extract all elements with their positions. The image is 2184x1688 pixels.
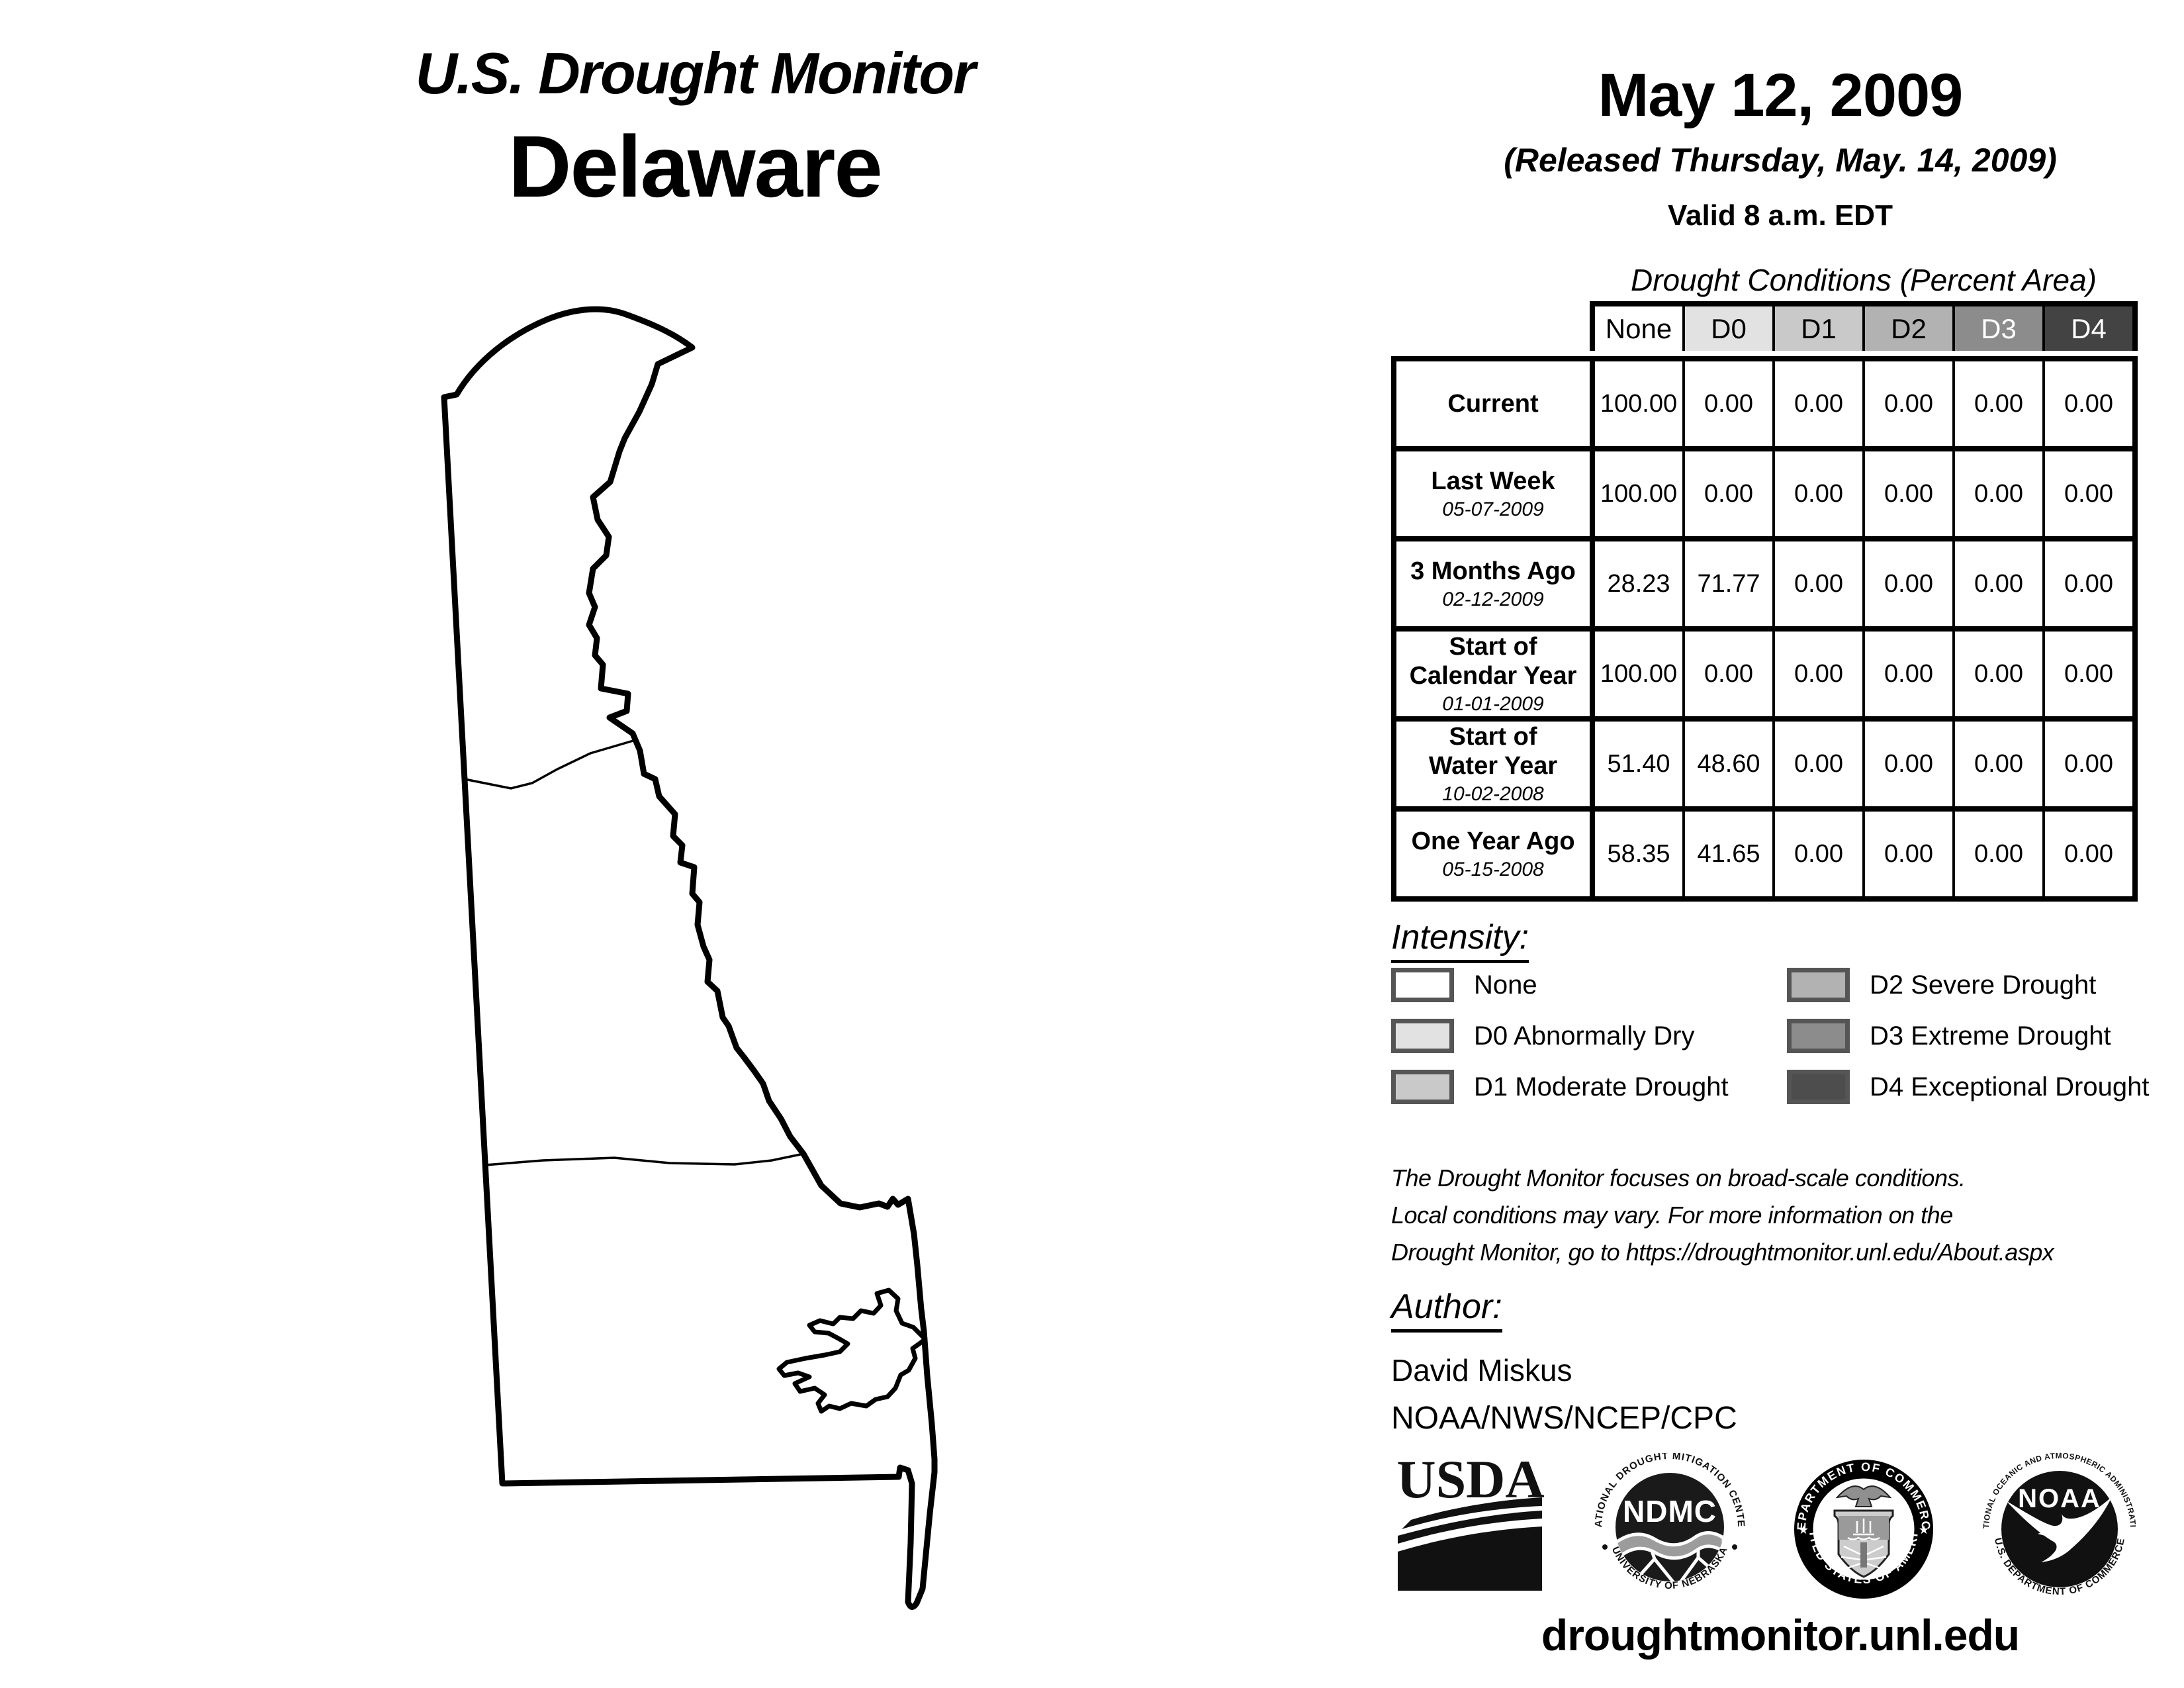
table-body: Current100.000.000.000.000.000.00Last We… (1391, 356, 2138, 902)
value-cell-D2: 0.00 (1865, 541, 1952, 626)
legend-label: None (1474, 970, 1537, 1000)
value-cell-None: 28.23 (1595, 541, 1682, 626)
value-cell-D2: 0.00 (1865, 812, 1952, 896)
value-cell-None: 100.00 (1595, 451, 1682, 536)
row-label-cell: Last Week05-07-2009 (1396, 451, 1592, 536)
row-label: One Year Ago (1411, 827, 1574, 856)
row-label-cell: 3 Months Ago02-12-2009 (1396, 541, 1592, 626)
row-label-cell: Start of Calendar Year01-01-2009 (1396, 632, 1592, 716)
table-header-cell-D2: D2 (1865, 306, 1952, 351)
inland-bays-outline (779, 1290, 925, 1411)
map-date: May 12, 2009 (1377, 61, 2184, 130)
table-header-row: NoneD0D1D2D3D4 (1590, 301, 2138, 351)
value-cell-D3: 0.00 (1955, 632, 2042, 716)
state-outline (444, 309, 934, 1607)
legend-item: D3 Extreme Drought (1787, 1019, 2149, 1053)
value-cell-D0: 48.60 (1685, 722, 1772, 806)
table-header-cell-None: None (1595, 306, 1682, 351)
row-date: 05-15-2008 (1442, 859, 1543, 881)
commerce-seal-icon: DEPARTMENT OF COMMERCE UNITED STATES OF … (1790, 1455, 1938, 1604)
legend-column-left: NoneD0 Abnormally DryD1 Moderate Drought (1391, 968, 1729, 1121)
value-cell-D4: 0.00 (2045, 361, 2132, 446)
row-label-cell: One Year Ago05-15-2008 (1396, 812, 1592, 896)
author-block: Author: David Miskus NOAA/NWS/NCEP/CPC (1391, 1287, 1737, 1436)
svg-text:NDMC: NDMC (1623, 1494, 1717, 1528)
legend-swatch (1787, 1019, 1850, 1053)
valid-time: Valid 8 a.m. EDT (1377, 199, 2184, 232)
county-line-kent-sussex (485, 1154, 803, 1165)
ndmc-logo-icon: NDMC NATIONAL DROUGHT MITIGATION CENTER … (1594, 1453, 1746, 1605)
value-cell-D1: 0.00 (1775, 632, 1862, 716)
drought-conditions-table: NoneD0D1D2D3D4 Current100.000.000.000.00… (1391, 301, 2138, 902)
value-cell-D1: 0.00 (1775, 812, 1862, 896)
value-cell-D0: 0.00 (1685, 632, 1772, 716)
value-cell-D4: 0.00 (2045, 541, 2132, 626)
delaware-map (437, 298, 999, 1628)
author-heading: Author: (1391, 1287, 1737, 1333)
author-org: NOAA/NWS/NCEP/CPC (1391, 1400, 1737, 1436)
disclaimer: The Drought Monitor focuses on broad-sca… (1391, 1160, 2159, 1271)
row-label: 3 Months Ago (1410, 557, 1576, 586)
legend-item: None (1391, 968, 1729, 1002)
drought-monitor-report: U.S. Drought Monitor Delaware May 12, 20… (0, 0, 2184, 1688)
table-header-cell-D0: D0 (1685, 306, 1772, 351)
value-cell-D2: 0.00 (1865, 632, 1952, 716)
value-cell-D3: 0.00 (1955, 812, 2042, 896)
value-cell-D0: 71.77 (1685, 541, 1772, 626)
author-name: David Miskus (1391, 1352, 1737, 1388)
table-caption: Drought Conditions (Percent Area) (1590, 262, 2138, 298)
value-cell-D2: 0.00 (1865, 722, 1952, 806)
row-label: Current (1447, 389, 1538, 418)
value-cell-D3: 0.00 (1955, 451, 2042, 536)
table-header-cell-D4: D4 (2045, 306, 2132, 351)
legend-swatch (1787, 1070, 1850, 1104)
value-cell-D4: 0.00 (2045, 632, 2132, 716)
value-cell-D4: 0.00 (2045, 812, 2132, 896)
footer-url: droughtmonitor.unl.edu (1377, 1610, 2184, 1660)
legend-label: D2 Severe Drought (1870, 970, 2096, 1000)
value-cell-D4: 0.00 (2045, 451, 2132, 536)
value-cell-D3: 0.00 (1955, 361, 2042, 446)
value-cell-D2: 0.00 (1865, 361, 1952, 446)
value-cell-D2: 0.00 (1865, 451, 1952, 536)
svg-text:★: ★ (1798, 1523, 1809, 1536)
value-cell-None: 100.00 (1595, 632, 1682, 716)
value-cell-D1: 0.00 (1775, 451, 1862, 536)
disclaimer-line: The Drought Monitor focuses on broad-sca… (1391, 1160, 2159, 1197)
legend-swatch (1787, 968, 1850, 1002)
value-cell-None: 100.00 (1595, 361, 1682, 446)
county-line-new-castle-kent (465, 740, 635, 788)
value-cell-D1: 0.00 (1775, 361, 1862, 446)
value-cell-D3: 0.00 (1955, 722, 2042, 806)
legend-label: D1 Moderate Drought (1474, 1072, 1729, 1102)
legend-item: D0 Abnormally Dry (1391, 1019, 1729, 1053)
row-date: 05-07-2009 (1442, 498, 1543, 521)
released-date: (Released Thursday, May. 14, 2009) (1377, 141, 2184, 179)
value-cell-D1: 0.00 (1775, 722, 1862, 806)
row-label-cell: Current (1396, 361, 1592, 446)
logo-row: USDA NDMC NATIONAL DROUGHT MITIGATION CE… (1391, 1450, 2138, 1609)
row-date: 02-12-2009 (1442, 588, 1543, 611)
value-cell-D1: 0.00 (1775, 541, 1862, 626)
row-label: Start of Water Year (1429, 722, 1557, 780)
state-title: Delaware (265, 117, 1125, 216)
legend-label: D4 Exceptional Drought (1870, 1072, 2149, 1102)
legend-swatch (1391, 1070, 1454, 1104)
row-label-cell: Start of Water Year10-02-2008 (1396, 722, 1592, 806)
value-cell-D4: 0.00 (2045, 722, 2132, 806)
legend-item: D2 Severe Drought (1787, 968, 2149, 1002)
value-cell-None: 51.40 (1595, 722, 1682, 806)
intensity-legend: NoneD0 Abnormally DryD1 Moderate Drought… (1391, 968, 2152, 1127)
value-cell-D0: 0.00 (1685, 361, 1772, 446)
table-header-cell-D3: D3 (1955, 306, 2042, 351)
legend-column-right: D2 Severe DroughtD3 Extreme DroughtD4 Ex… (1787, 968, 2149, 1121)
legend-label: D3 Extreme Drought (1870, 1021, 2111, 1051)
row-label: Start of Calendar Year (1410, 632, 1577, 690)
row-date: 01-01-2009 (1442, 693, 1543, 716)
value-cell-D0: 41.65 (1685, 812, 1772, 896)
legend-swatch (1391, 968, 1454, 1002)
value-cell-D3: 0.00 (1955, 541, 2042, 626)
row-date: 10-02-2008 (1442, 783, 1543, 806)
date-block: May 12, 2009 (Released Thursday, May. 14… (1377, 61, 2184, 232)
svg-text:NOAA: NOAA (2018, 1484, 2101, 1513)
disclaimer-line: Drought Monitor, go to https://droughtmo… (1391, 1234, 2159, 1271)
legend-item: D4 Exceptional Drought (1787, 1070, 2149, 1104)
report-title: U.S. Drought Monitor (265, 40, 1125, 107)
value-cell-D0: 0.00 (1685, 451, 1772, 536)
noaa-logo-icon: NOAA NATIONAL OCEANIC AND ATMOSPHERIC AD… (1982, 1452, 2138, 1607)
title-block: U.S. Drought Monitor Delaware (265, 40, 1125, 216)
row-label: Last Week (1431, 467, 1555, 496)
legend-item: D1 Moderate Drought (1391, 1070, 1729, 1104)
usda-logo-icon: USDA (1391, 1455, 1550, 1604)
value-cell-None: 58.35 (1595, 812, 1682, 896)
intensity-heading: Intensity: (1391, 917, 1529, 963)
legend-swatch (1391, 1019, 1454, 1053)
disclaimer-line: Local conditions may vary. For more info… (1391, 1197, 2159, 1234)
svg-text:★: ★ (1919, 1523, 1929, 1536)
legend-label: D0 Abnormally Dry (1474, 1021, 1694, 1051)
table-header-cell-D1: D1 (1775, 306, 1862, 351)
